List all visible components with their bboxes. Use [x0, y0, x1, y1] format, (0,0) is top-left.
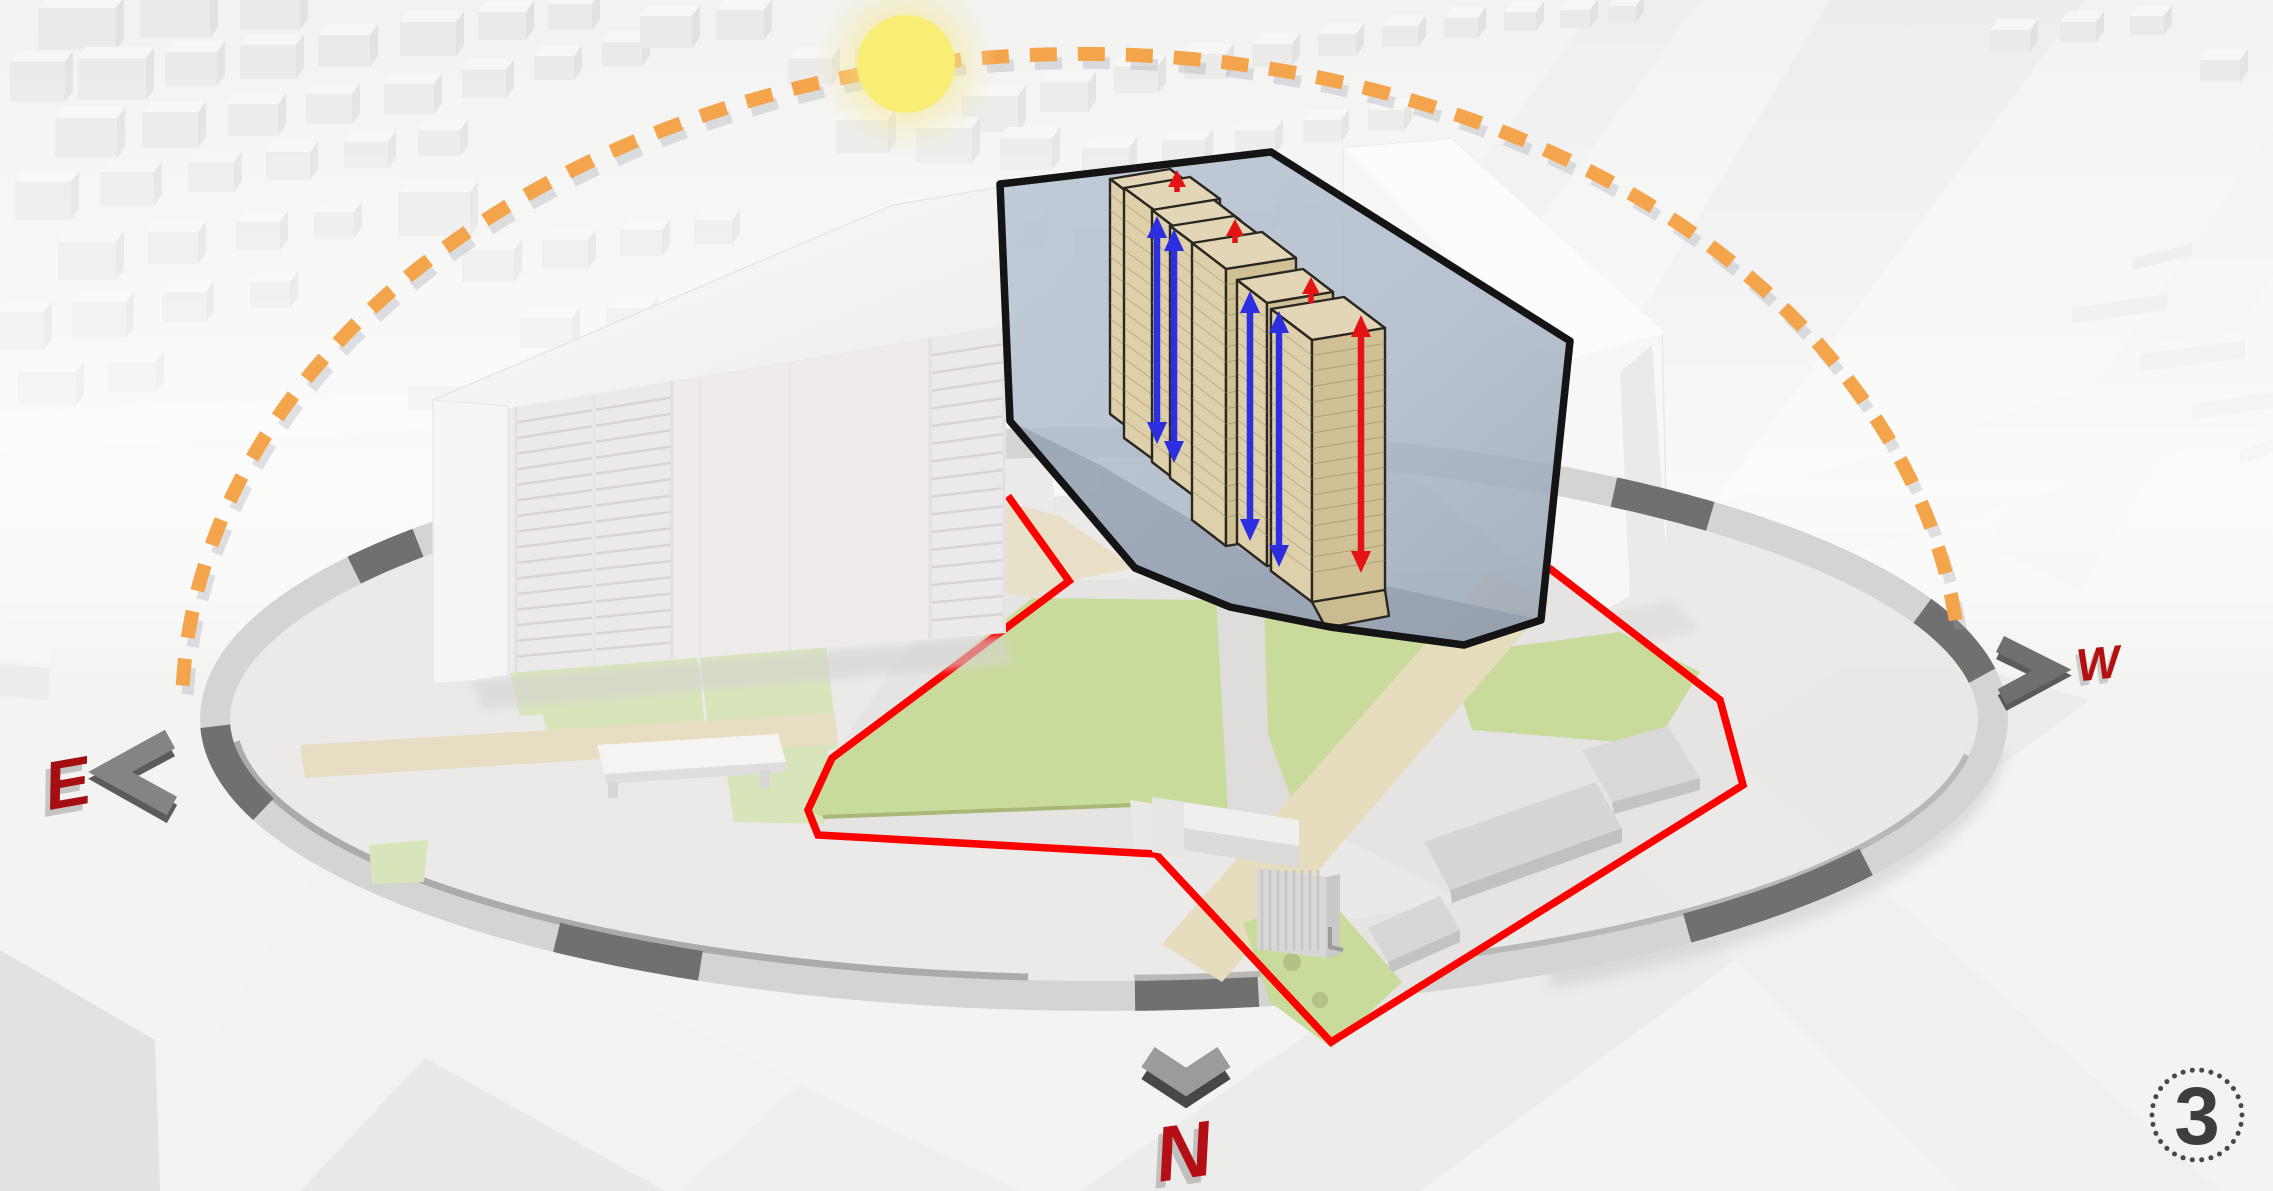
- svg-text:3: 3: [2174, 1071, 2220, 1162]
